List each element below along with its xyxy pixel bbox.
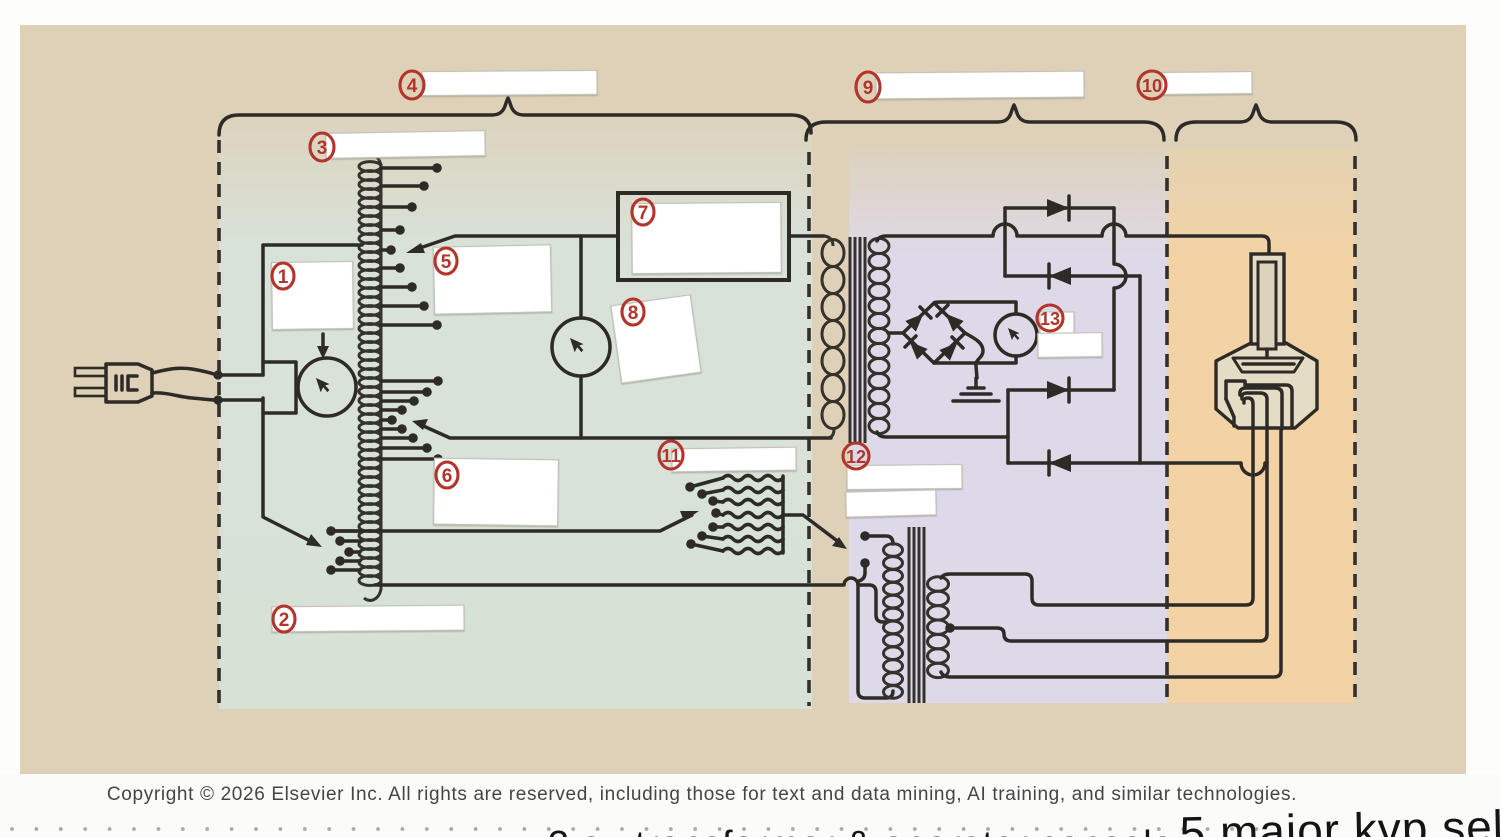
svg-text:7: 7 [638,203,649,224]
svg-text:1: 1 [278,267,289,288]
svg-text:8: 8 [628,303,639,324]
svg-text:9: 9 [863,78,874,99]
svg-text:5: 5 [441,252,452,273]
svg-text:12: 12 [846,447,866,467]
svg-text:6: 6 [442,466,453,487]
svg-text:13: 13 [1040,309,1060,329]
svg-text:Copyright © 2026 Elsevier Inc.: Copyright © 2026 Elsevier Inc. All right… [107,784,1297,805]
svg-text:11: 11 [661,446,680,466]
svg-text:3: 3 [317,138,328,159]
svg-text:10: 10 [1142,76,1162,96]
svg-text:3 au transformer & operator co: 3 au transformer & operator console [548,824,1174,837]
svg-text:4: 4 [407,76,418,97]
svg-text:2: 2 [279,610,290,631]
